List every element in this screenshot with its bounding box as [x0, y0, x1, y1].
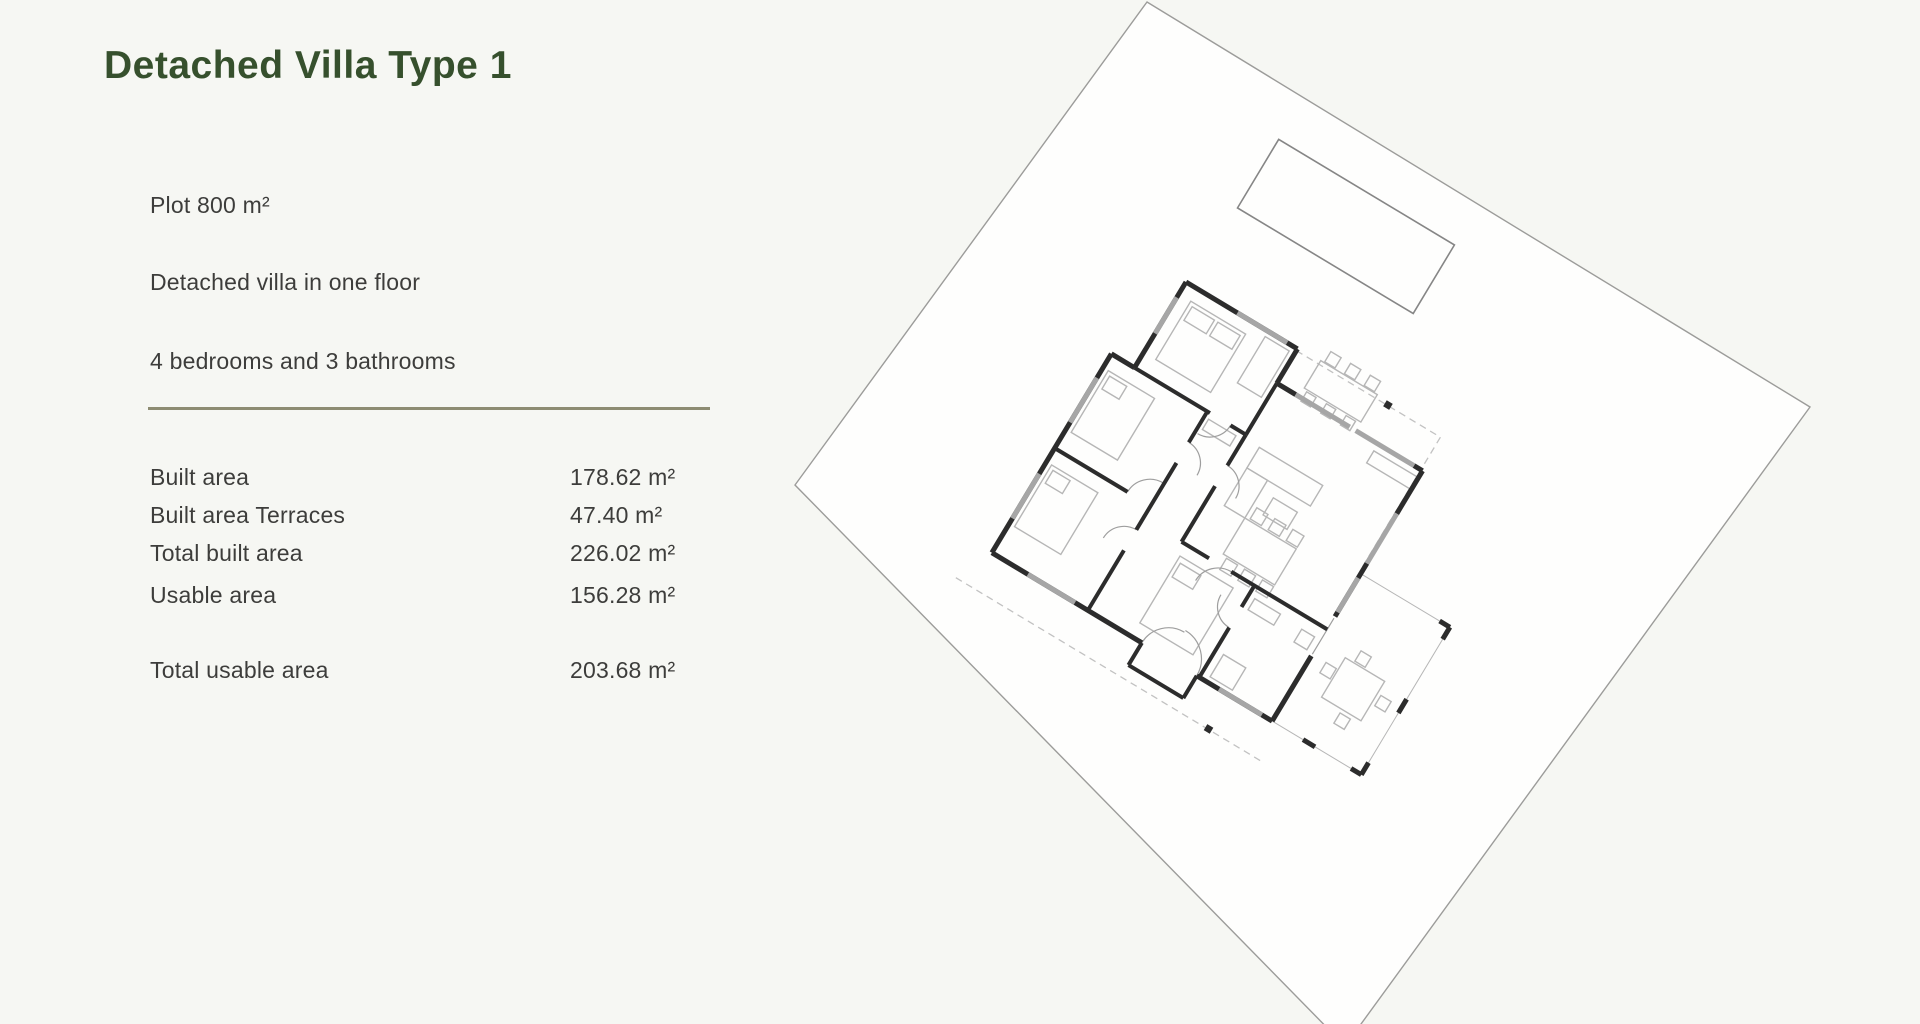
brochure-page: { "page": {"background": "#f6f7f3"}, "he… [0, 0, 1920, 1024]
divider-line [148, 407, 710, 410]
plot-boundary [795, 2, 1810, 1024]
area-value: 226.02 m² [570, 540, 675, 567]
spec-floors: Detached villa in one floor [150, 269, 420, 295]
area-value: 47.40 m² [570, 502, 662, 529]
spec-rooms: 4 bedrooms and 3 bathrooms [150, 348, 456, 374]
area-value: 203.68 m² [570, 657, 675, 684]
area-label: Built area Terraces [150, 502, 345, 529]
area-label: Built area [150, 464, 249, 491]
area-value: 156.28 m² [570, 582, 675, 609]
area-label: Total built area [150, 540, 303, 567]
spec-plot-size: Plot 800 m² [150, 192, 270, 218]
area-label: Total usable area [150, 657, 329, 684]
spec-panel: Detached Villa Type 1 Plot 800 m² Detach… [0, 0, 780, 1024]
area-value: 178.62 m² [570, 464, 675, 491]
area-label: Usable area [150, 582, 276, 609]
plot-polygon [795, 2, 1810, 1024]
page-title: Detached Villa Type 1 [104, 44, 512, 88]
